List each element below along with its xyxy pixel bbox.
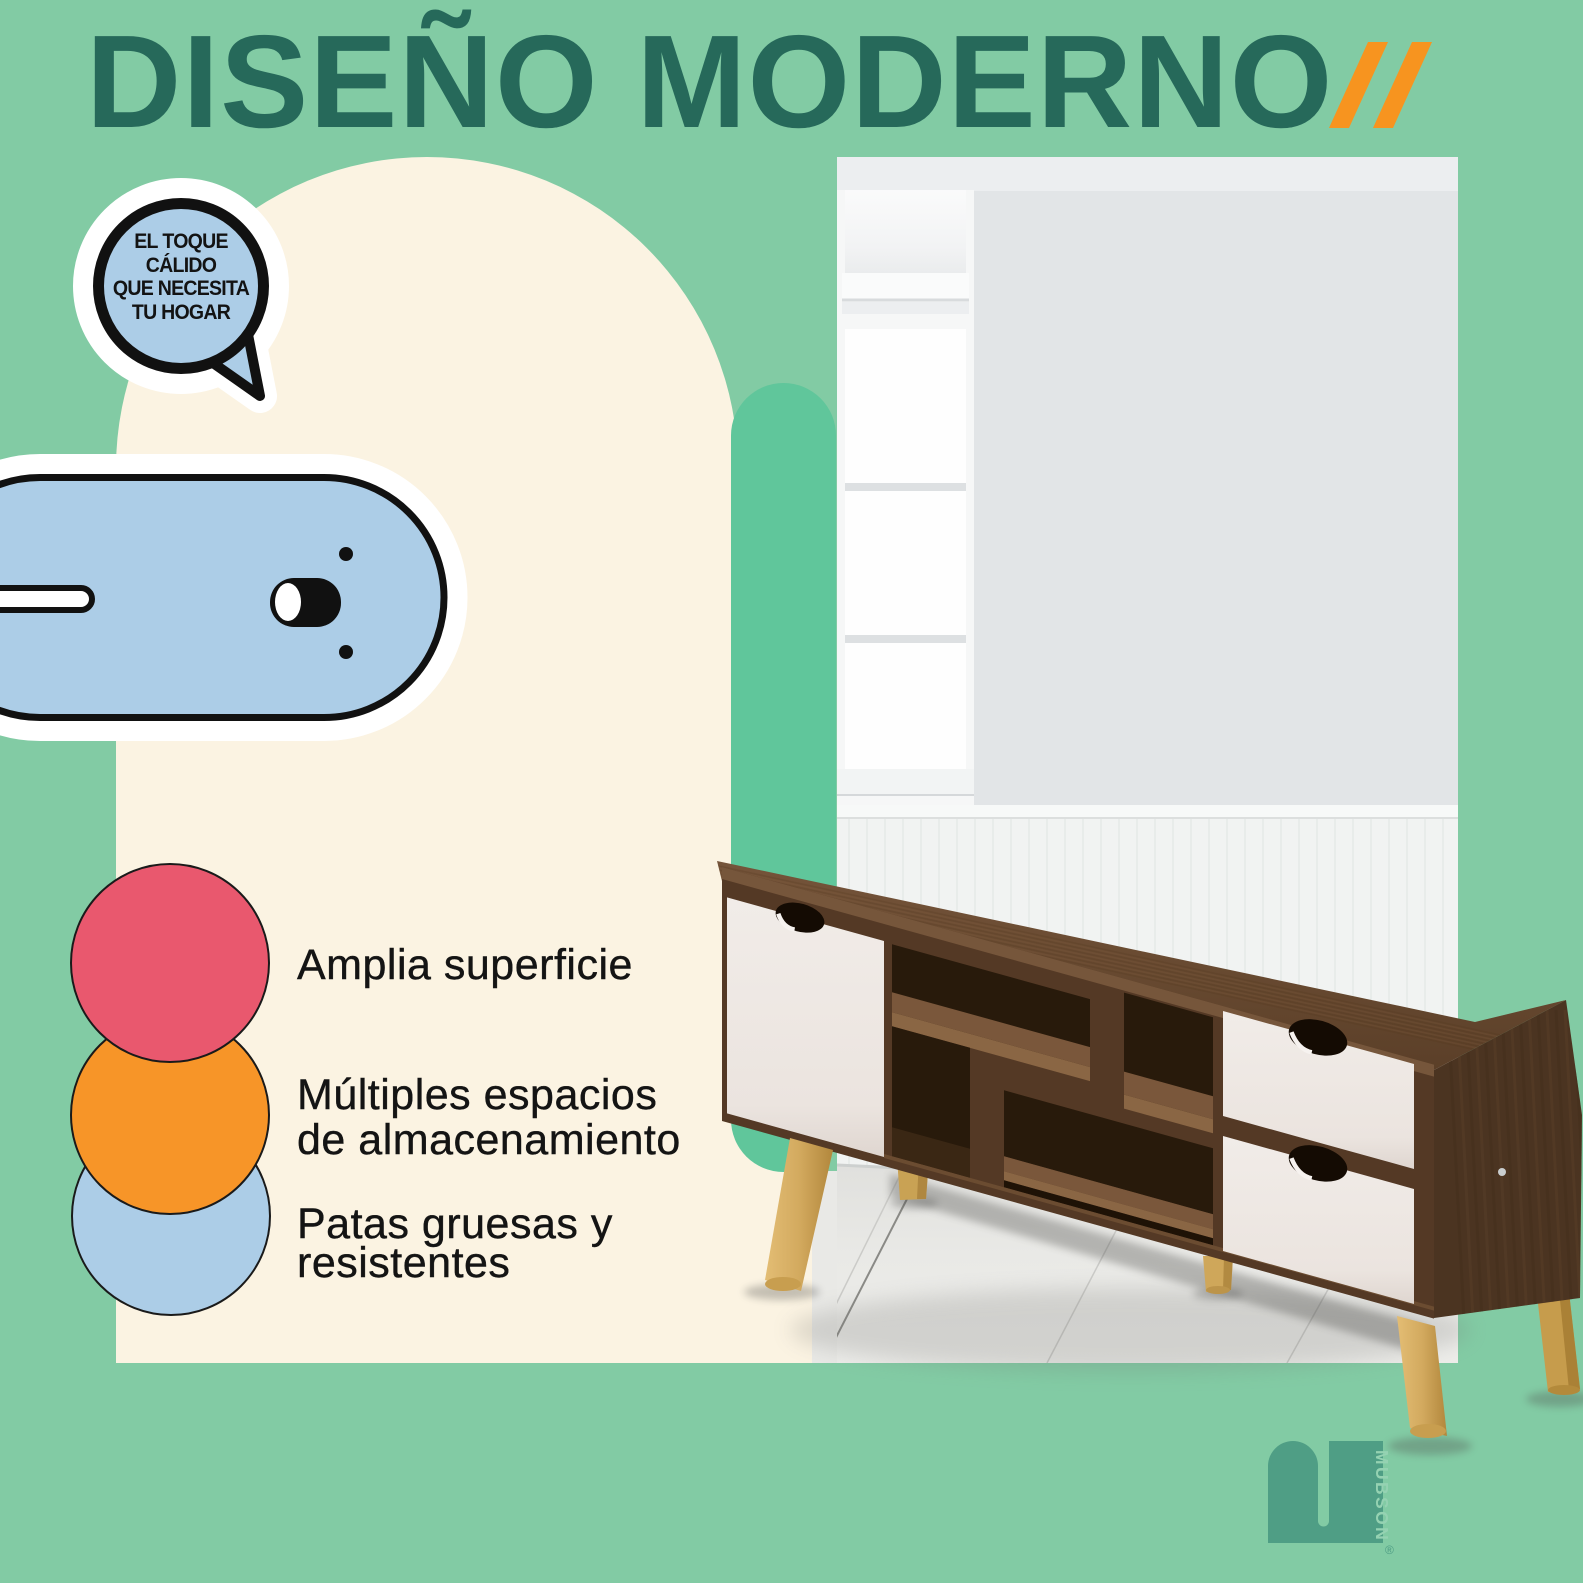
svg-text:®: ® [1385, 1543, 1394, 1557]
svg-text:MUBSON: MUBSON [1372, 1450, 1392, 1542]
